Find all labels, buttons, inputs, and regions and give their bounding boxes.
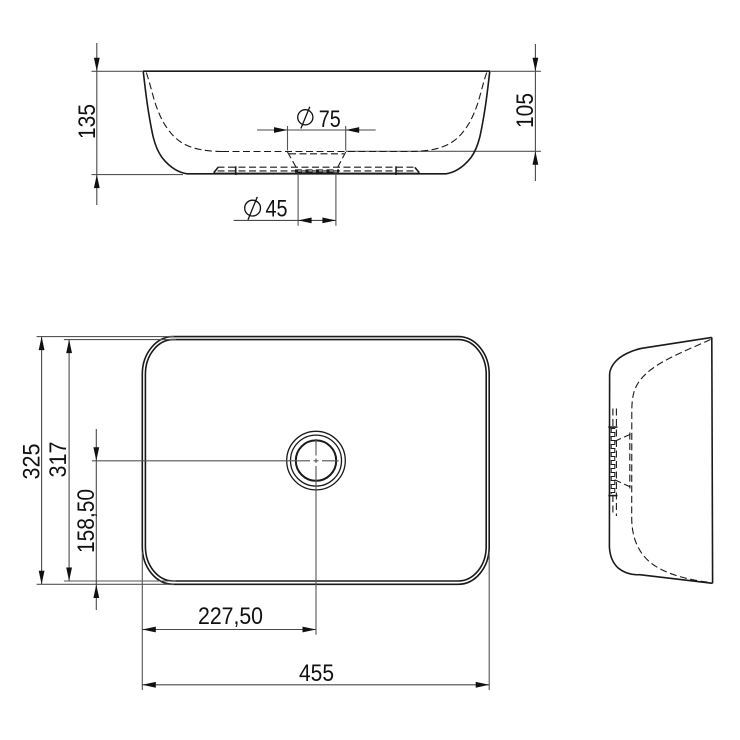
svg-text:75: 75 xyxy=(319,106,341,133)
svg-text:105: 105 xyxy=(512,93,539,128)
svg-text:158,50: 158,50 xyxy=(73,489,100,553)
svg-text:455: 455 xyxy=(299,660,334,687)
svg-text:227,50: 227,50 xyxy=(198,603,263,630)
svg-text:317: 317 xyxy=(45,442,72,478)
svg-text:45: 45 xyxy=(266,196,288,223)
svg-text:135: 135 xyxy=(74,104,101,139)
svg-text:325: 325 xyxy=(19,444,46,480)
